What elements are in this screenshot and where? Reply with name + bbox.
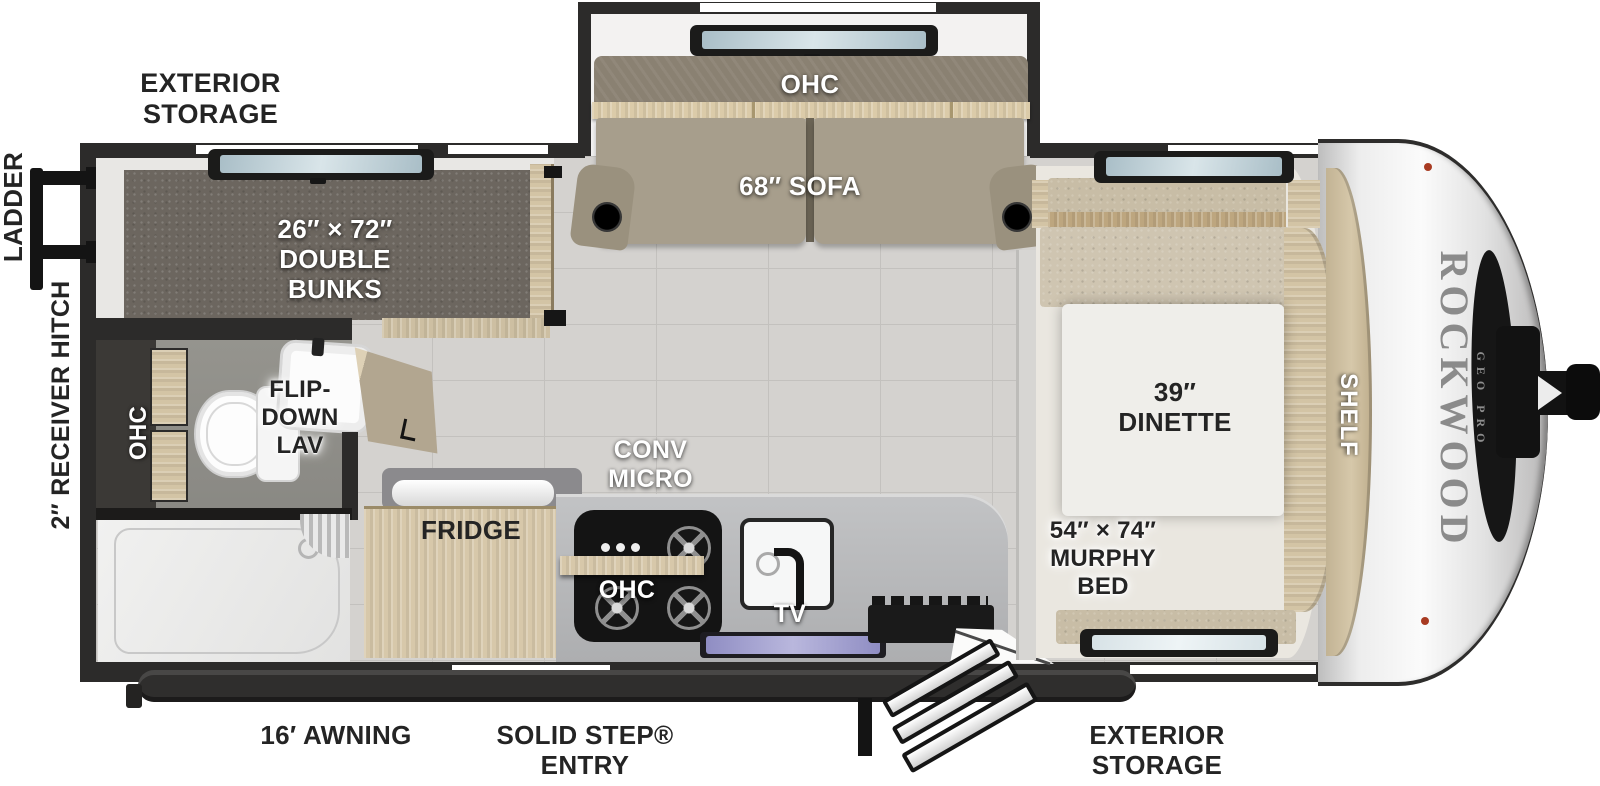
bathroom-shelf-upper (150, 348, 188, 426)
label-receiver-hitch: 2″ RECEIVER HITCH (47, 270, 71, 540)
marker-light-top (1424, 163, 1432, 171)
ladder-rail (30, 168, 43, 290)
label-entry: SOLID STEP® ENTRY (490, 720, 680, 780)
burner-bottom-right (667, 586, 711, 630)
label-double-bunks: 26″ × 72″ DOUBLE BUNKS (240, 214, 430, 304)
dinette-seat-back (1040, 227, 1290, 307)
kitchen-ohc-shelf (560, 556, 704, 575)
label-exterior-storage-top: EXTERIOR STORAGE (118, 68, 303, 131)
label-awning: 16′ AWNING (246, 720, 426, 750)
bunk-ladder-edge (530, 164, 554, 324)
sofa-shelf-divider-2 (950, 102, 953, 119)
lav-faucet (311, 338, 324, 357)
label-sofa-ohc: OHC (770, 69, 850, 99)
cooktop-knob-2 (616, 543, 625, 552)
solid-step-bracket (858, 698, 872, 756)
cupholder-right (1002, 202, 1032, 232)
bunk-bracket-bottom (544, 310, 566, 326)
wall-opening-top-2 (448, 145, 548, 154)
hitch-coupler (1566, 364, 1600, 420)
ladder-mount-bottom (86, 241, 96, 263)
bunk-bracket-top (544, 166, 562, 178)
ladder-rung-top (30, 171, 94, 185)
cooktop-knob-3 (631, 543, 640, 552)
cooktop-knob-1 (601, 543, 610, 552)
bunk-front-edge (382, 318, 550, 338)
ladder-rung-bottom (30, 245, 94, 259)
sofa-shelf-divider-1 (752, 102, 755, 119)
brand-logo: GEO PRO ROCKWOOD (1426, 230, 1498, 570)
awning-bracket (126, 684, 142, 708)
label-conv-micro: CONV MICRO (588, 436, 713, 494)
slideout-left-wall (578, 2, 591, 158)
bunk-partition-wall (80, 318, 352, 340)
brand-name: ROCKWOOD (1436, 250, 1474, 549)
cupholder-left (592, 202, 622, 232)
ladder-mount-top (86, 167, 96, 189)
bathroom-shelf-lower (150, 430, 188, 502)
marker-light-bottom (1421, 617, 1429, 625)
floorplan-canvas: GEO PRO ROCKWOOD EXTERIOR STORAGE LADDER… (0, 0, 1600, 786)
label-murphy-bed: 54″ × 74″ MURPHY BED (1028, 517, 1178, 600)
label-exterior-storage-bottom: EXTERIOR STORAGE (1067, 720, 1247, 780)
label-bath-ohc: OHC (125, 388, 149, 478)
dinette-window-top-glass (1106, 157, 1282, 176)
label-ladder: LADDER (0, 137, 24, 277)
bed-sideboard-right (1288, 180, 1320, 228)
slideout-right-wall (1027, 2, 1040, 158)
murphy-window-bottom-glass (1092, 635, 1266, 650)
slideout-wall-opening (700, 3, 936, 12)
label-dinette: 39″ DINETTE (1095, 377, 1255, 437)
label-flip-down-lav: FLIP- DOWN LAV (235, 376, 365, 459)
slideout-window-glass (702, 31, 926, 49)
entry-door-mat-inner (706, 636, 880, 654)
label-sofa: 68″ SOFA (710, 171, 890, 201)
bed-bolster-top (1048, 178, 1286, 216)
exterior-storage-door-bottom (1130, 665, 1316, 674)
sofa-ohc-shelf (592, 102, 1030, 119)
label-fridge: FRIDGE (396, 515, 546, 545)
label-shelf: SHELF (1336, 355, 1362, 475)
bunk-window-glass (220, 155, 422, 173)
bed-bolster-wood-lip (1048, 212, 1286, 227)
label-tv: TV (768, 600, 812, 629)
fridge-towel-roll (392, 480, 554, 506)
bunk-window-latch (310, 178, 326, 184)
label-kitchen-ohc: OHC (592, 576, 662, 605)
